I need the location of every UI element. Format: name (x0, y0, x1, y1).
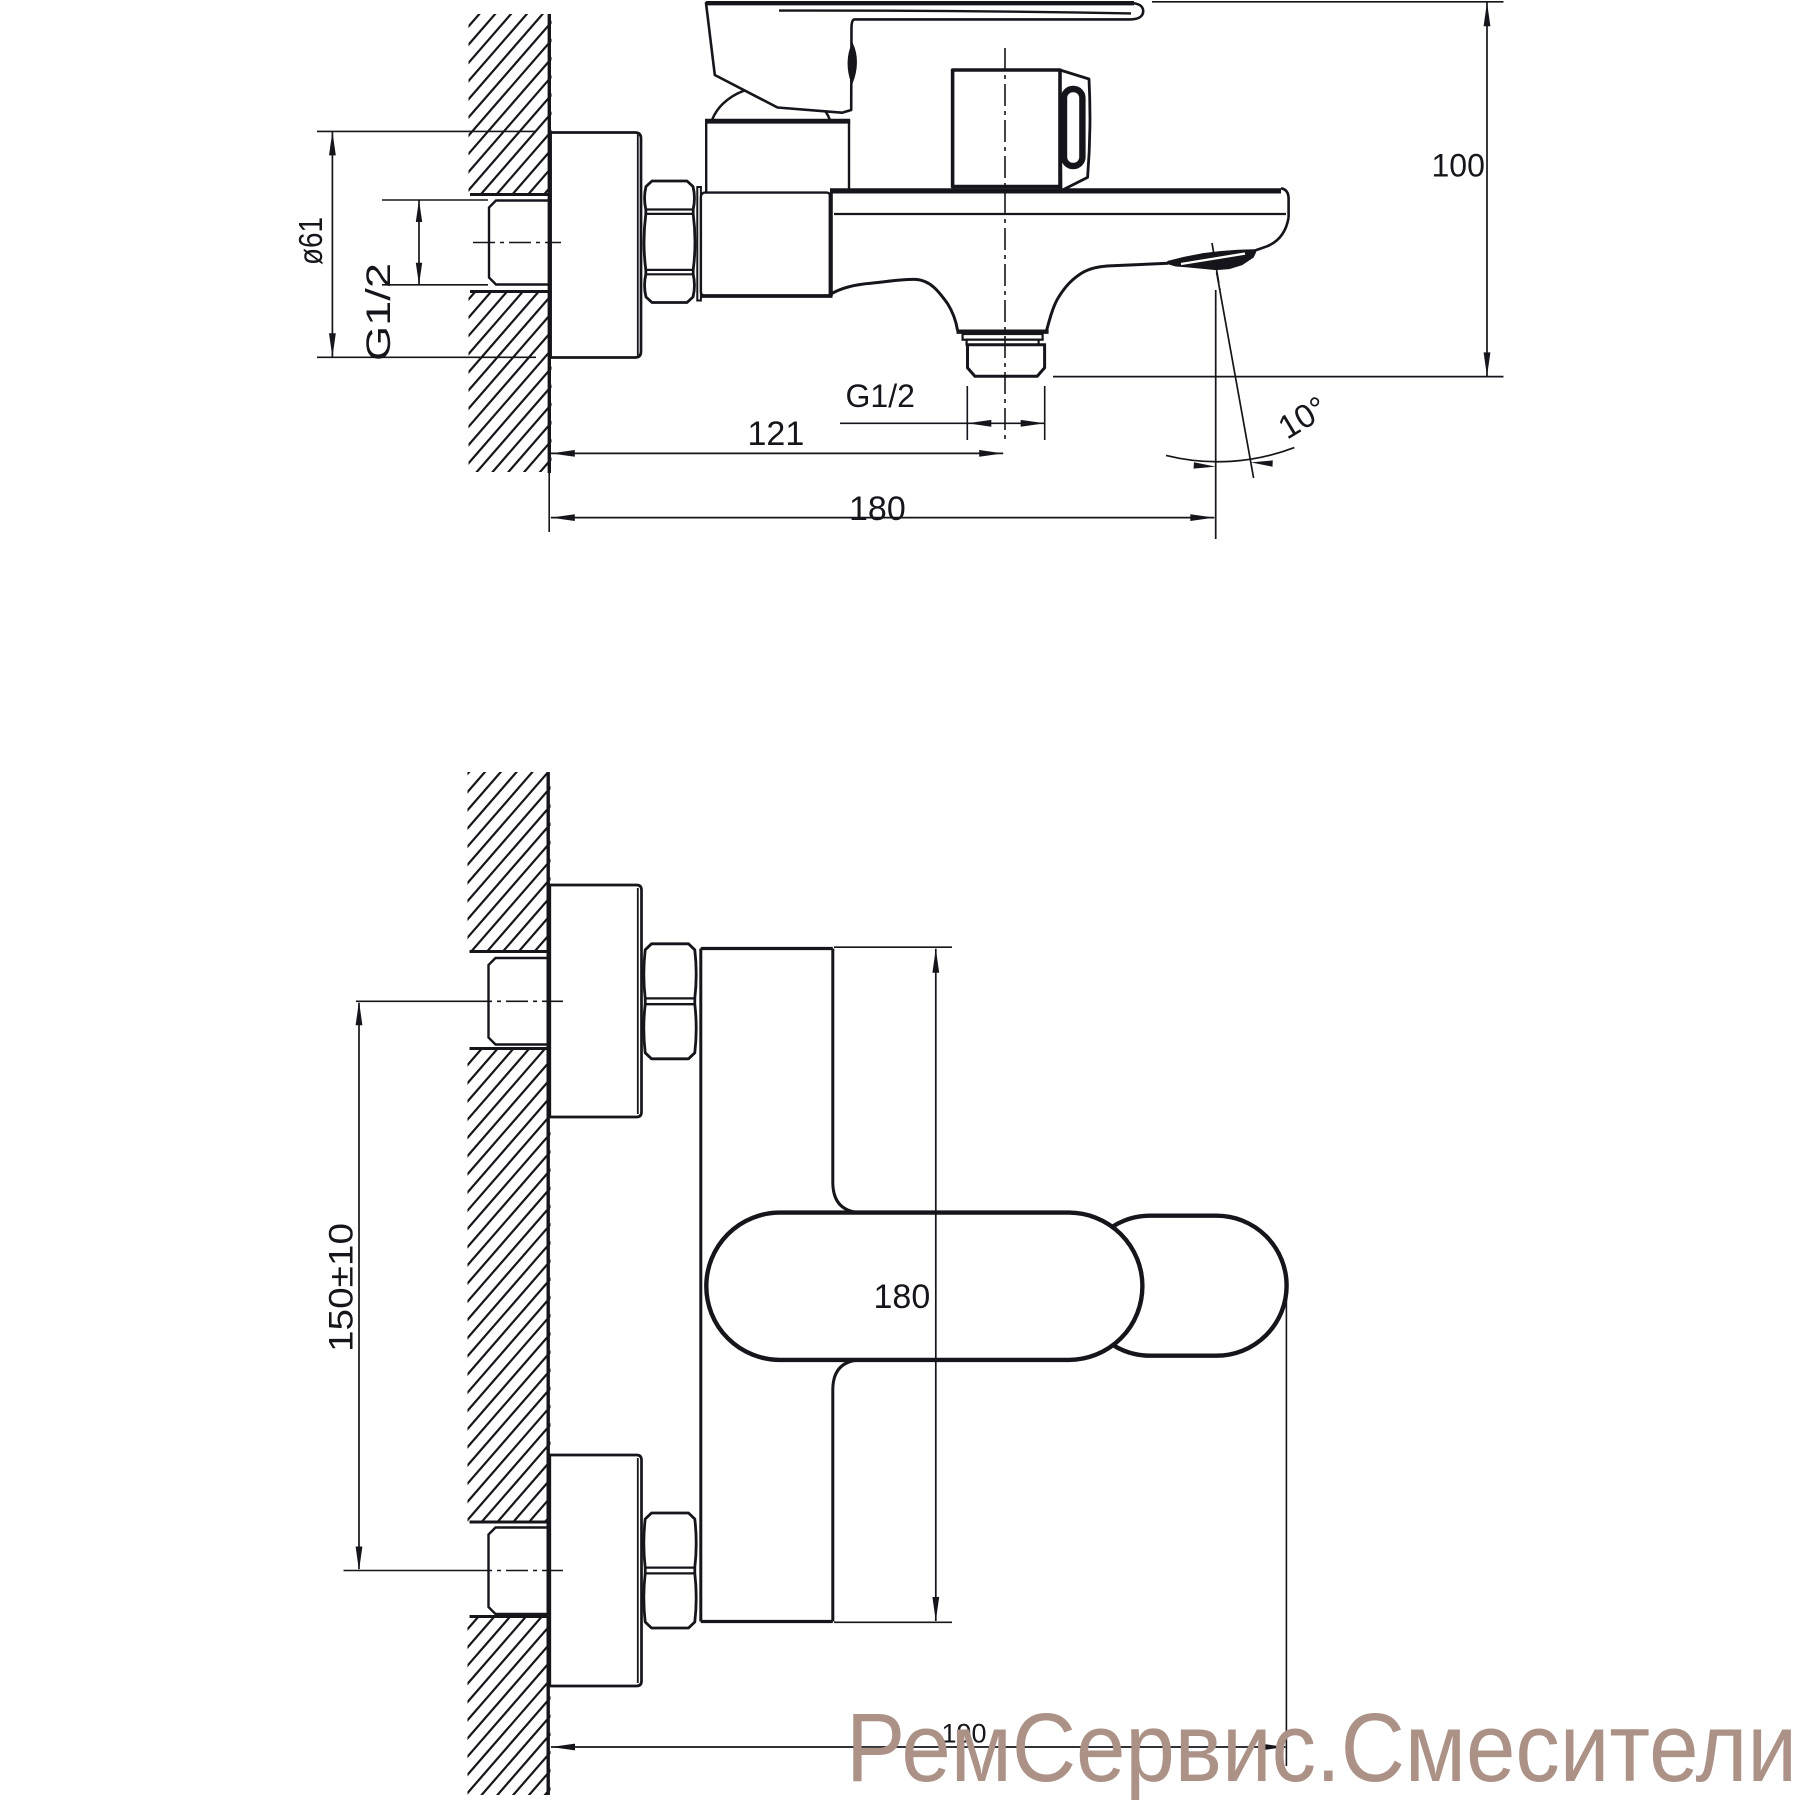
svg-text:100: 100 (1432, 148, 1485, 184)
svg-text:ø61: ø61 (292, 217, 329, 265)
svg-text:G1/2: G1/2 (846, 378, 915, 414)
svg-text:180: 180 (849, 490, 906, 528)
svg-text:150±10: 150±10 (323, 1223, 361, 1352)
svg-text:180: 180 (874, 1278, 931, 1316)
svg-text:121: 121 (748, 415, 805, 453)
svg-text:РемСервис.Смесители: РемСервис.Смесители (846, 1693, 1797, 1800)
svg-text:G1/2: G1/2 (360, 263, 398, 361)
